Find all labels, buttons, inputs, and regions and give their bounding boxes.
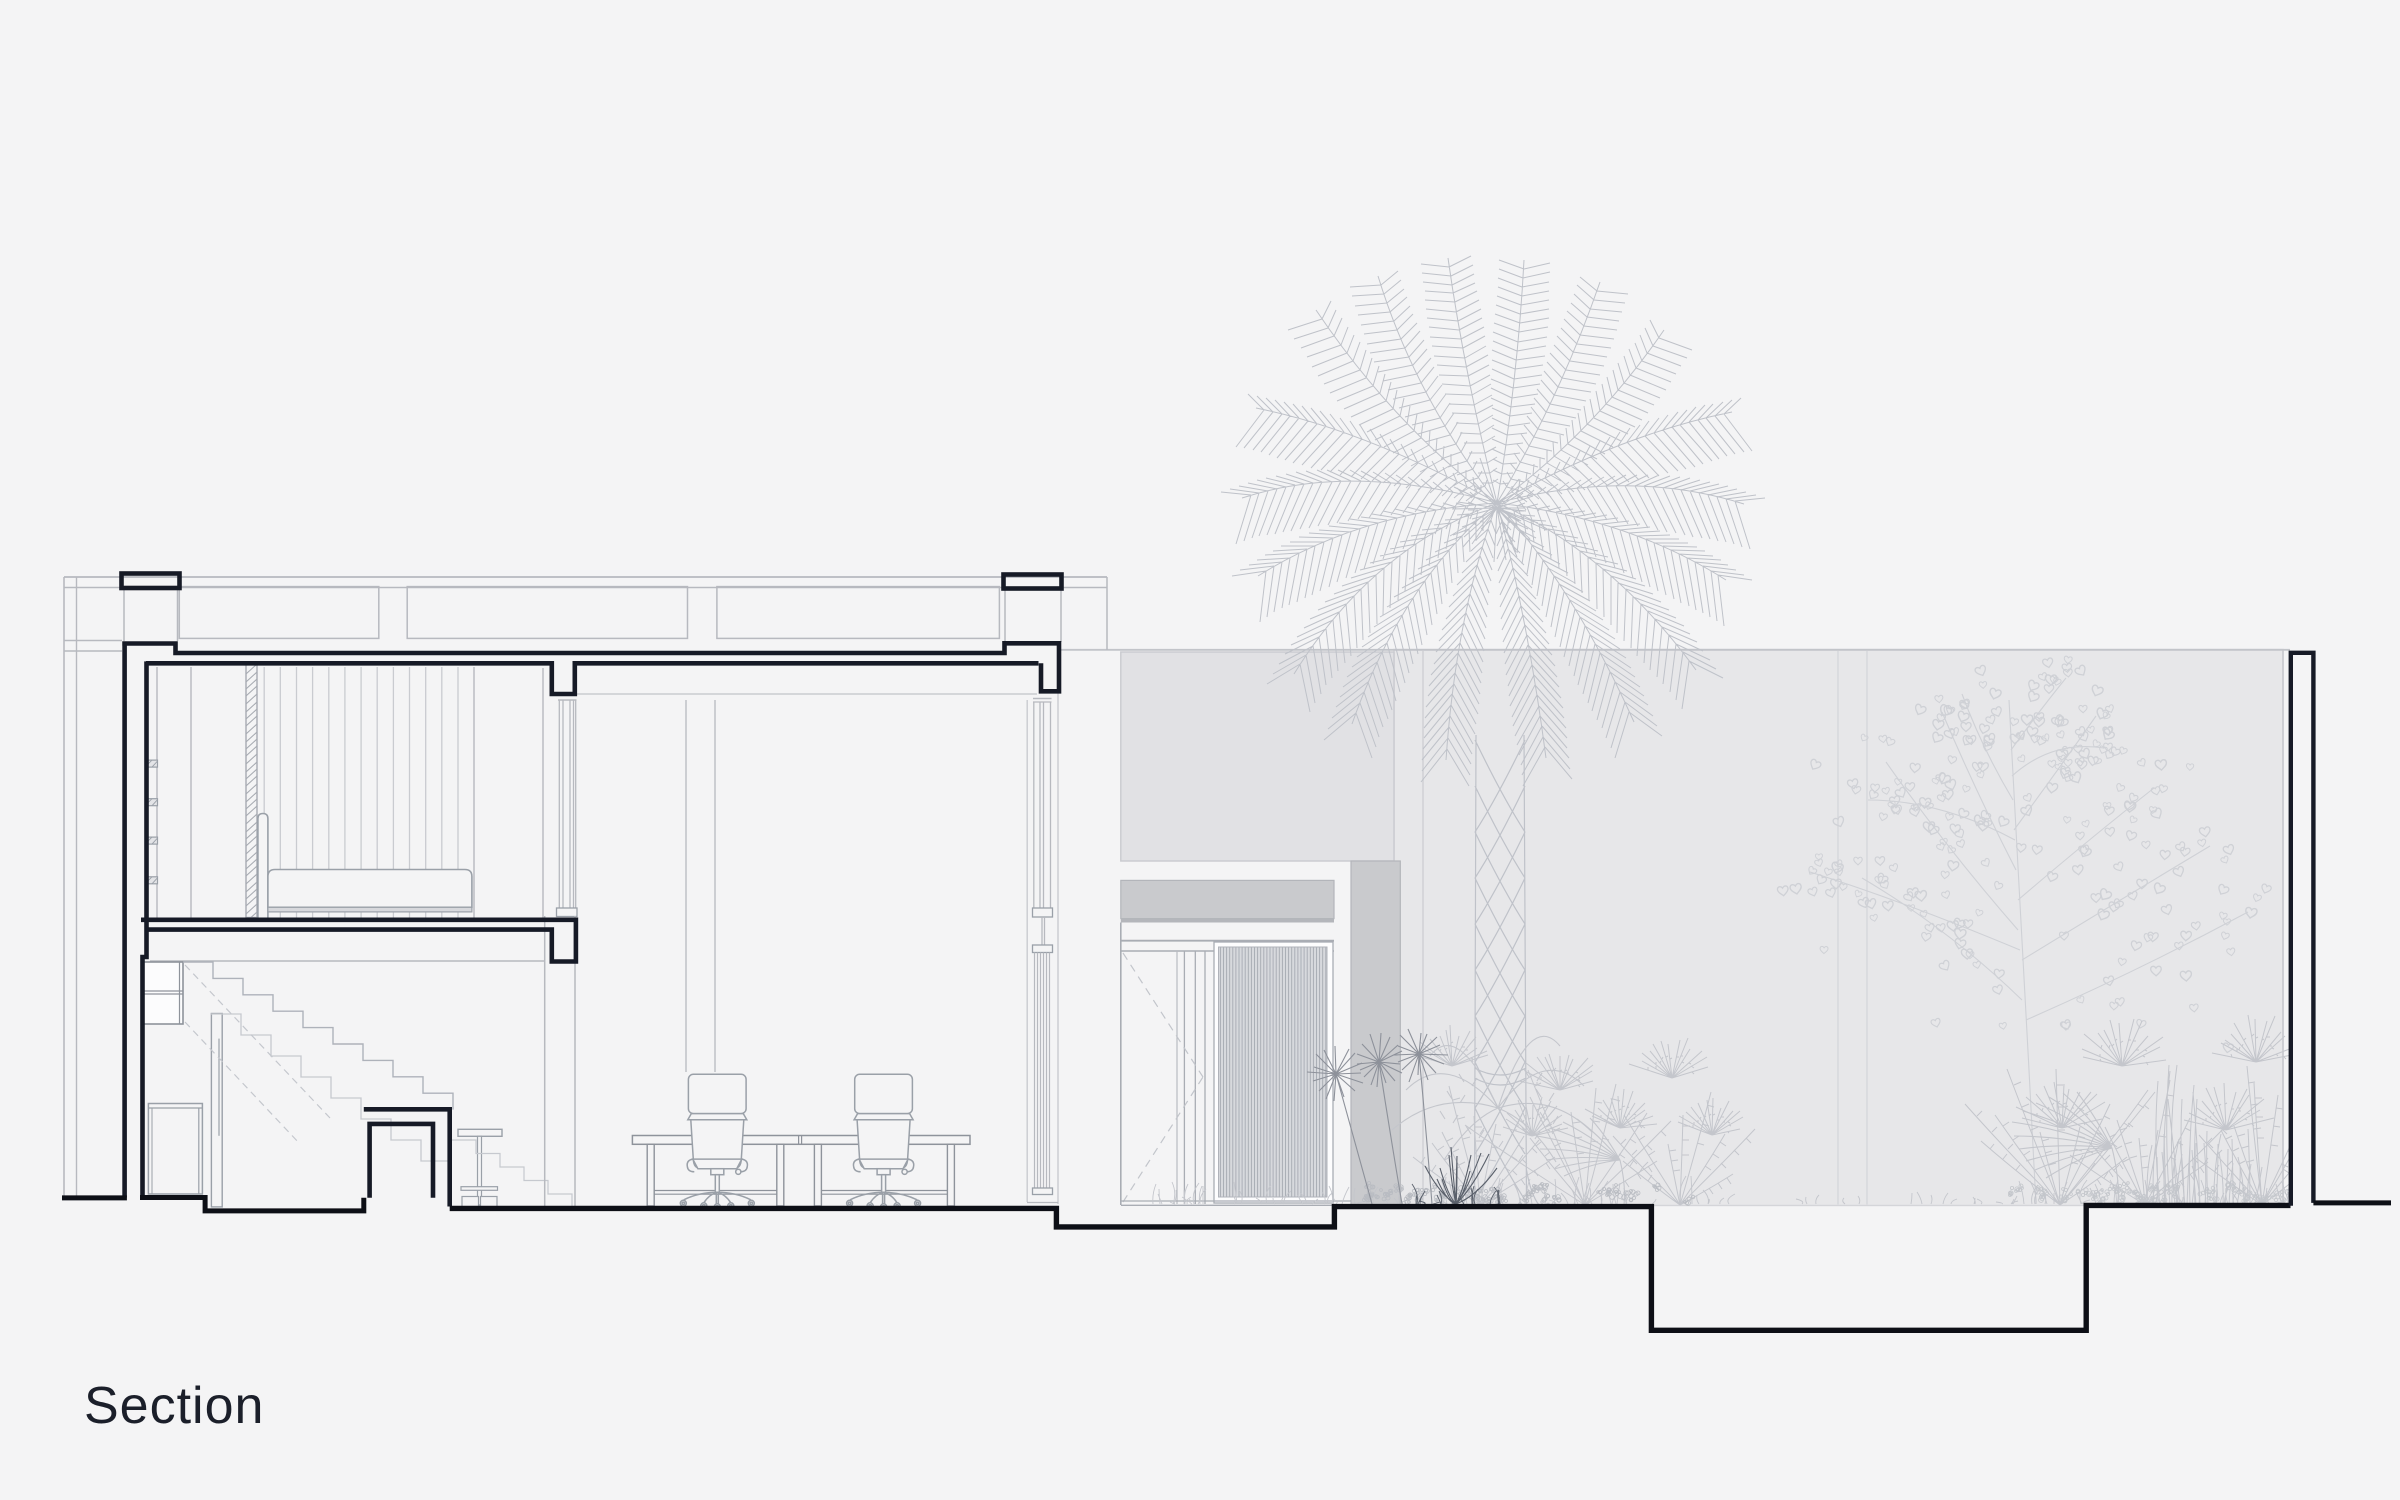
svg-text:Section: Section xyxy=(84,1377,264,1435)
